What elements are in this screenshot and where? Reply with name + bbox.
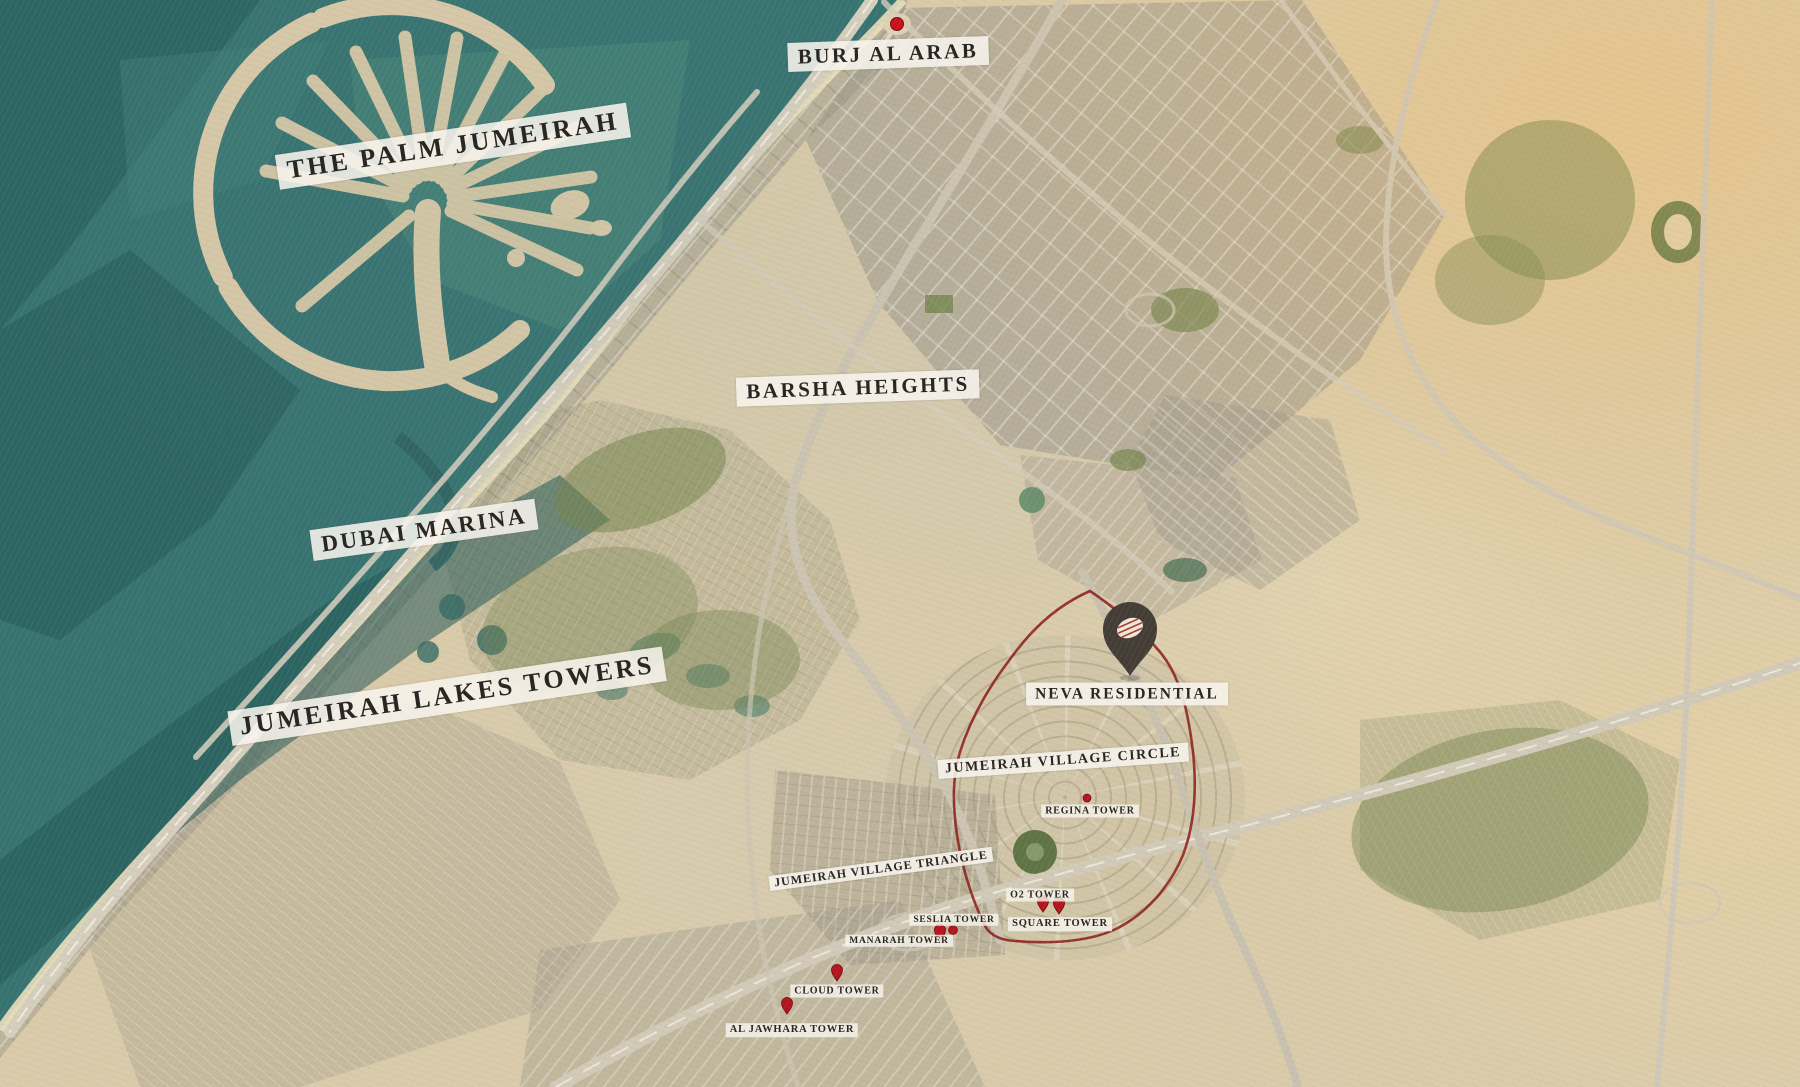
label-al-jawhara-tower: AL JAWHARA TOWER [726,1023,858,1037]
dubai-satellite-map: THE PALM JUMEIRAH BURJ AL ARAB BARSHA HE… [0,0,1800,1087]
label-o2-tower: O2 TOWER [1006,889,1074,902]
label-seslia-tower: SESLIA TOWER [909,914,998,926]
label-regina-tower: REGINA TOWER [1041,805,1139,818]
label-square-tower: SQUARE TOWER [1008,917,1112,931]
tone-overlay [0,0,1800,1087]
label-neva-residential: NEVA RESIDENTIAL [1026,682,1228,705]
label-manarah-tower: MANARAH TOWER [845,935,953,947]
label-cloud-tower: CLOUD TOWER [790,985,883,998]
